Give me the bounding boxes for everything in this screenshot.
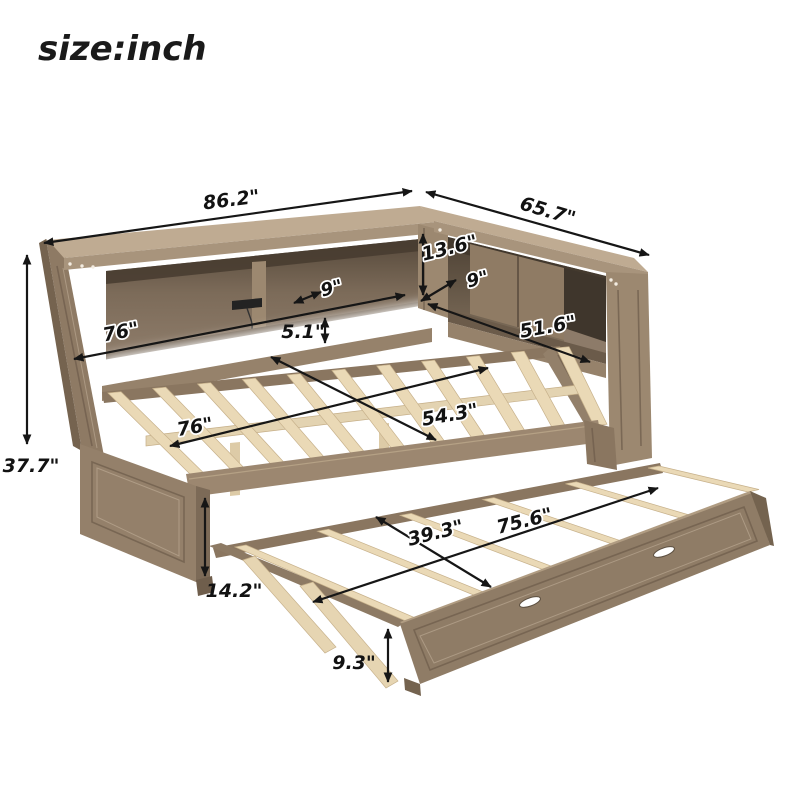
bed-foot-post xyxy=(584,420,617,470)
size-unit-title: size:inch xyxy=(38,29,207,69)
screw-dot xyxy=(80,264,83,267)
trundle-bed xyxy=(209,463,774,696)
dim-label-overall-height: 37.7" xyxy=(3,455,60,477)
screw-dot xyxy=(609,278,612,281)
screw-dot xyxy=(91,265,94,268)
dim-label-trundle-length: 75.6" xyxy=(494,504,554,539)
diagram-canvas: size:inch xyxy=(0,0,800,800)
dim-base-strip-height: 5.1" xyxy=(281,318,325,343)
dim-label-bookcase-short: 65.7" xyxy=(517,193,578,230)
product-dimension-diagram: size:inch xyxy=(0,0,800,800)
dim-label-end-panel-height: 14.2" xyxy=(206,580,263,602)
bed-end-panel-side xyxy=(196,486,210,582)
dim-label-bookcase-long: 86.2" xyxy=(202,186,261,215)
trundle-panel-foot xyxy=(404,678,421,696)
dim-label-base-strip-height: 5.1" xyxy=(281,321,325,343)
screw-dot xyxy=(614,282,617,285)
dim-label-trundle-height: 9.3" xyxy=(332,652,376,674)
screw-dot xyxy=(438,228,441,231)
screw-dot xyxy=(68,262,71,265)
